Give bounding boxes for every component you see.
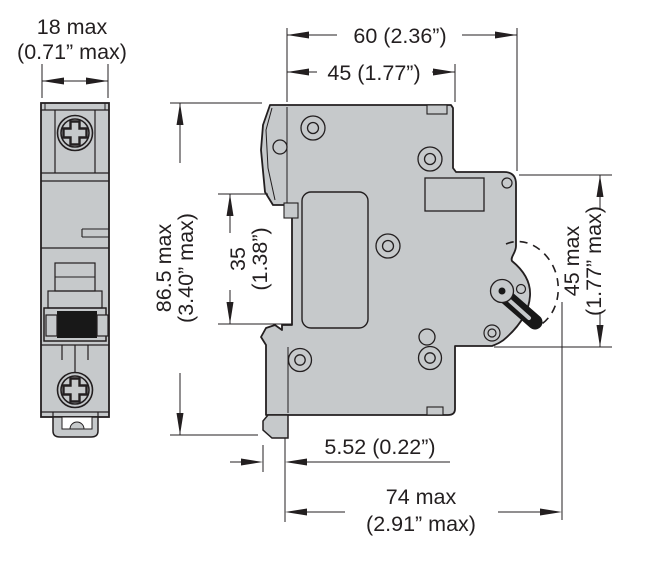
arrowhead-right	[86, 78, 108, 85]
technical-drawing-canvas: 18 max (0.71” max) 60 (2.36”) 45 (1.77”)…	[0, 0, 647, 565]
dim-din-channel-value-in: (1.38”)	[248, 227, 272, 290]
arrowhead-right	[495, 32, 517, 39]
front-top-terminal-screw	[58, 116, 93, 151]
dim-handle-zone-value: 45 max	[560, 226, 584, 297]
pivot-side-hole	[517, 285, 526, 294]
arrowhead-left	[285, 459, 307, 466]
arrowhead-right	[241, 459, 263, 466]
arrowhead-left	[287, 32, 309, 39]
side-top-tab	[427, 105, 447, 114]
breaker-dimension-drawing: 18 max (0.71” max) 60 (2.36”) 45 (1.77”)…	[0, 0, 647, 565]
dim-front-width: 18 max (0.71” max)	[17, 15, 127, 98]
dim-handle-zone-value-in: (1.77” max)	[582, 206, 606, 316]
arrowhead-down	[227, 302, 234, 324]
dim-front-width-value-in: (0.71” max)	[17, 40, 127, 64]
arrowhead-right	[540, 509, 562, 516]
handle-pivot-center	[499, 288, 506, 295]
front-bottom-terminal-screw	[58, 373, 93, 408]
handle-left-bracket	[46, 315, 57, 336]
arrowhead-left	[285, 509, 307, 516]
arrowhead-up	[227, 194, 234, 216]
side-bottom-tab	[427, 407, 443, 415]
flange-hole	[273, 140, 287, 154]
dim-height-total-value-in: (3.40” max)	[174, 213, 198, 323]
dim-depth-body: 45 (1.77”)	[287, 61, 455, 102]
handle-right-bracket	[97, 315, 108, 336]
dim-din-channel-value: 35	[226, 247, 250, 271]
dim-height-total-value: 86.5 max	[152, 224, 176, 313]
arrowhead-left	[42, 78, 64, 85]
front-toggle-handle	[57, 311, 97, 338]
arrowhead-right	[433, 69, 455, 76]
front-din-foot	[53, 417, 98, 437]
side-view	[261, 105, 558, 438]
dim-depth-with-handle-value-in: (2.91” max)	[366, 512, 476, 536]
dim-clip-protrusion-value: 5.52 (0.22”)	[324, 435, 435, 459]
dim-depth-total-value: 60 (2.36”)	[353, 24, 446, 48]
side-din-clip-foot	[263, 415, 288, 438]
side-wall-tab	[284, 203, 298, 218]
arrowhead-up	[177, 103, 184, 125]
arrowhead-up	[597, 175, 604, 197]
arrowhead-down	[597, 325, 604, 347]
dim-din-channel: 35 (1.38”)	[218, 194, 292, 324]
dim-depth-body-value: 45 (1.77”)	[327, 61, 420, 85]
dim-depth-with-handle-value: 74 max	[386, 485, 457, 509]
arrowhead-down	[177, 413, 184, 435]
front-view	[41, 103, 109, 437]
dim-front-width-value: 18 max	[37, 15, 108, 39]
arrowhead-left	[287, 69, 309, 76]
